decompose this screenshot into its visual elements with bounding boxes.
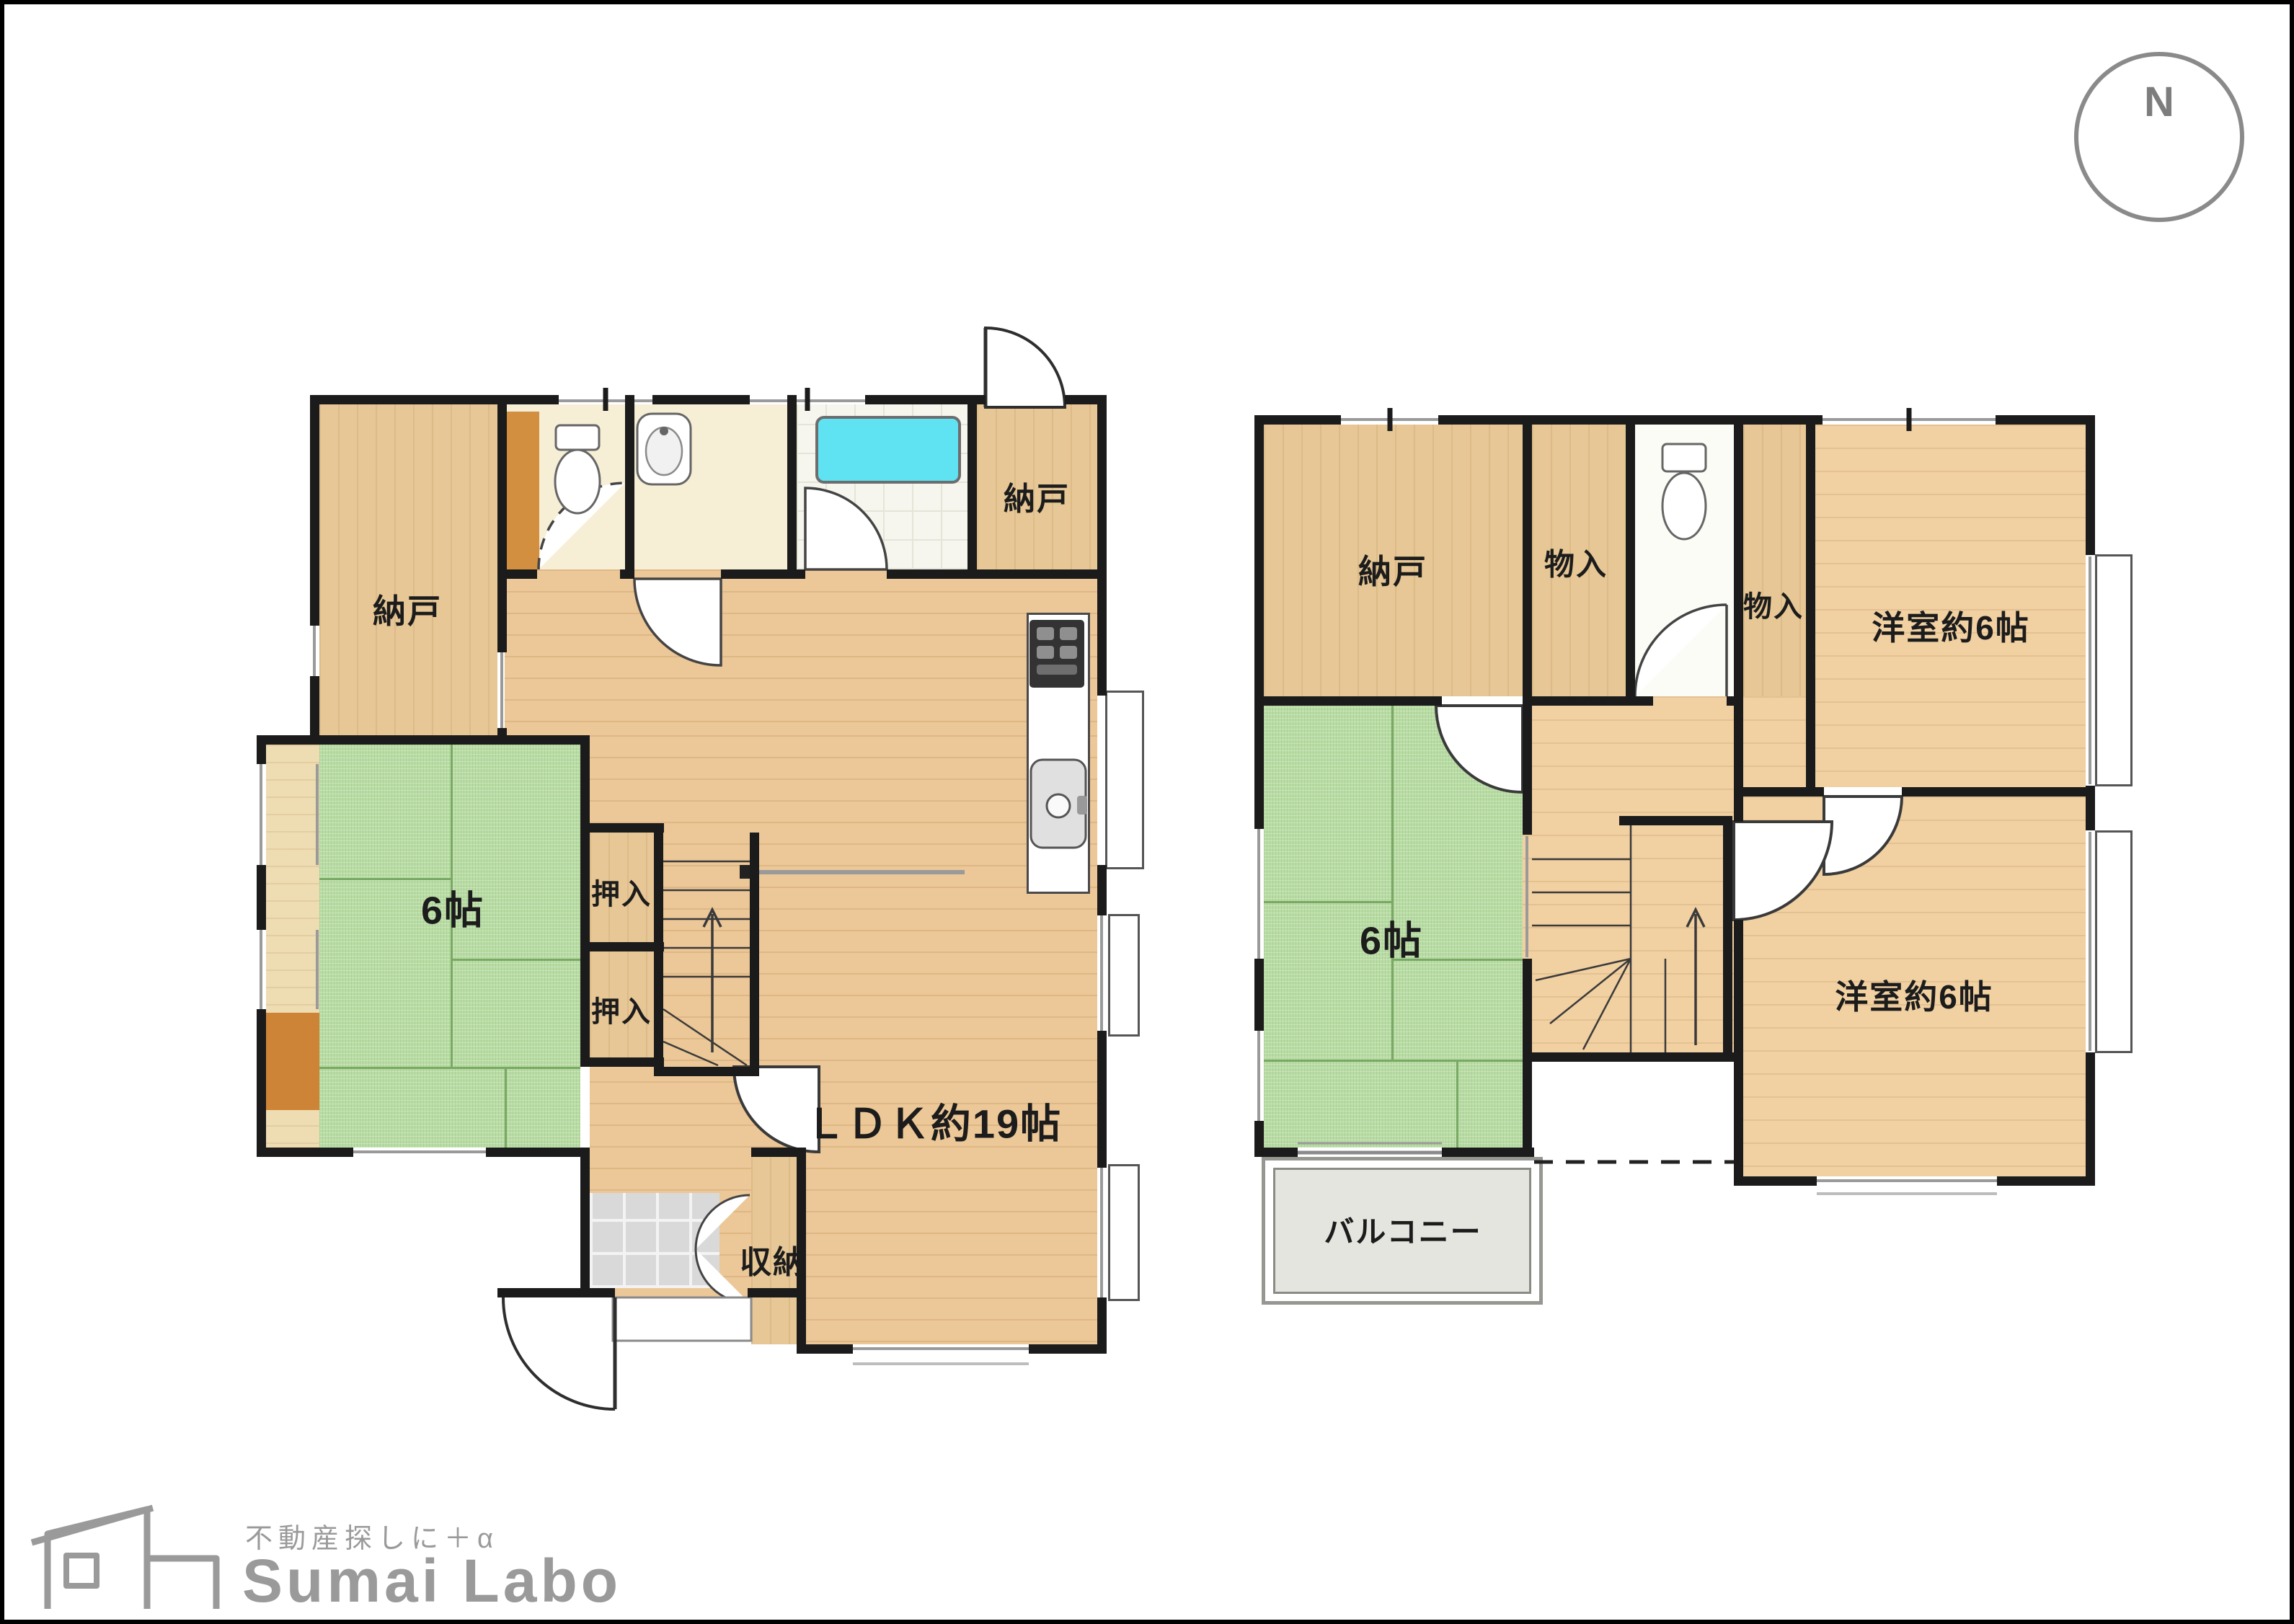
wall-segment bbox=[1734, 425, 1743, 787]
stairs-icon bbox=[663, 861, 750, 1065]
wall-segment bbox=[748, 1288, 797, 1297]
wall-segment bbox=[1902, 787, 2095, 797]
stove-icon bbox=[1029, 620, 1084, 688]
room-label-oshiire-top: 押入 bbox=[591, 871, 652, 913]
company-logo: 不動産探しに＋α Sumai Labo bbox=[29, 1503, 678, 1618]
wall-segment bbox=[1523, 1052, 1743, 1062]
wall-segment bbox=[1097, 865, 1107, 915]
room-label-tatami-2f: 6帖 bbox=[1360, 909, 1423, 966]
entry-main-door-arc bbox=[986, 328, 1065, 407]
wall-segment bbox=[1254, 415, 1264, 829]
washroom-door-arc bbox=[634, 579, 721, 665]
room-label-yoshitsu-bottom: 洋室約6帖 bbox=[1835, 971, 1993, 1019]
wall-segment bbox=[1523, 425, 1532, 706]
wall-segment bbox=[257, 735, 580, 745]
balcony-door-lines bbox=[1298, 1143, 1442, 1153]
washbasin-icon bbox=[637, 414, 691, 484]
wall-segment bbox=[310, 395, 559, 404]
logo-name: Sumai Labo bbox=[242, 1546, 621, 1616]
wall-segment bbox=[1635, 696, 1653, 706]
plan-linework bbox=[0, 0, 2294, 1624]
wall-segment bbox=[1734, 778, 1743, 822]
kitchen-peninsula-line bbox=[740, 865, 965, 879]
floorplan-canvas: 納戸 納戸 押入 押入 6帖 ＬＤＫ約19帖 収納 納戸 物入 物入 洋室約6帖… bbox=[0, 0, 2294, 1624]
wall-segment bbox=[787, 395, 797, 579]
room-label-balcony: バルコニー bbox=[1324, 1208, 1482, 1252]
wall-segment bbox=[1438, 415, 1823, 425]
compass-north-label: N bbox=[2144, 78, 2174, 126]
wall-segment bbox=[1532, 696, 1635, 706]
toilet-icon bbox=[1662, 444, 1706, 539]
wall-segment bbox=[497, 569, 537, 579]
wall-segment bbox=[497, 395, 507, 652]
stairs-icon bbox=[1532, 825, 1704, 1052]
wall-segment bbox=[1734, 787, 1824, 797]
compass: N bbox=[2074, 52, 2244, 222]
wall-segment bbox=[1727, 696, 1743, 706]
wall-segment bbox=[1254, 415, 1341, 425]
f2-yoshitsu-top-door-arc bbox=[1824, 797, 1902, 874]
wall-segment bbox=[1523, 696, 1532, 835]
room-label-yoshitsu-top: 洋室約6帖 bbox=[1872, 602, 2030, 649]
wall-segment bbox=[486, 1148, 590, 1157]
wall-segment bbox=[967, 395, 977, 579]
wall-segment bbox=[1806, 425, 1815, 787]
wall-segment bbox=[257, 865, 266, 930]
room-label-nando-2f: 納戸 bbox=[1358, 546, 1427, 593]
wall-segment bbox=[310, 395, 319, 626]
wall-segment bbox=[497, 728, 507, 745]
room-label-monoire-top: 物入 bbox=[1544, 541, 1608, 585]
f2-nando-door-arc bbox=[1436, 706, 1523, 792]
bathtub-icon bbox=[817, 417, 960, 482]
room-label-nando-top: 納戸 bbox=[1004, 473, 1070, 519]
wall-segment bbox=[1097, 395, 1107, 696]
wall-segment bbox=[1264, 696, 1442, 706]
wall-segment bbox=[2086, 1052, 2095, 1186]
wall-segment bbox=[2086, 415, 2095, 555]
entry-exterior-door-arc bbox=[503, 1297, 751, 1409]
wall-segment bbox=[721, 569, 805, 579]
wall-segment bbox=[1254, 1148, 1298, 1157]
wall-segment bbox=[257, 745, 266, 764]
room-label-nando-left: 納戸 bbox=[373, 585, 442, 633]
wall-segment bbox=[1996, 415, 2095, 425]
wall-segment bbox=[620, 569, 634, 579]
wall-segment bbox=[257, 1148, 353, 1157]
wall-segment bbox=[1734, 1176, 1817, 1186]
room-label-ldk: ＬＤＫ約19帖 bbox=[805, 1092, 1062, 1150]
wall-segment bbox=[654, 1067, 759, 1076]
wall-segment bbox=[580, 735, 590, 1067]
wall-segment bbox=[750, 833, 759, 1067]
room-label-shuno: 収納 bbox=[740, 1236, 806, 1282]
wall-segment bbox=[257, 1009, 266, 1157]
wall-segment bbox=[887, 569, 1107, 579]
wall-segment bbox=[580, 1057, 664, 1067]
wall-segment bbox=[1619, 816, 1732, 825]
wall-segment bbox=[1254, 959, 1264, 1031]
bath-door-arc bbox=[805, 488, 887, 569]
kitchen-sink-icon bbox=[1031, 760, 1087, 848]
f2-toilet-door-arc bbox=[1635, 605, 1727, 696]
f2-yoshitsu-bottom-door-arc bbox=[1734, 822, 1832, 920]
wall-segment bbox=[580, 942, 664, 951]
wall-segment bbox=[1029, 1344, 1107, 1354]
wall-segment bbox=[1442, 1148, 1534, 1157]
room-label-oshiire-bottom: 押入 bbox=[591, 988, 652, 1030]
wall-segment bbox=[580, 1157, 590, 1288]
wall-segment bbox=[625, 395, 634, 579]
wall-segment bbox=[1626, 425, 1635, 706]
wall-segment bbox=[1997, 1176, 2095, 1186]
wall-segment bbox=[580, 823, 664, 833]
toilet-icon bbox=[555, 425, 600, 513]
wall-segment bbox=[1097, 1031, 1107, 1168]
wall-segment bbox=[1723, 825, 1732, 1062]
room-label-tatami-1f: 6帖 bbox=[421, 879, 484, 936]
wall-segment bbox=[310, 676, 319, 745]
wall-segment bbox=[652, 395, 750, 404]
wall-segment bbox=[497, 1288, 615, 1297]
room-label-monoire-right: 物入 bbox=[1743, 583, 1804, 625]
wall-segment bbox=[654, 823, 663, 1067]
